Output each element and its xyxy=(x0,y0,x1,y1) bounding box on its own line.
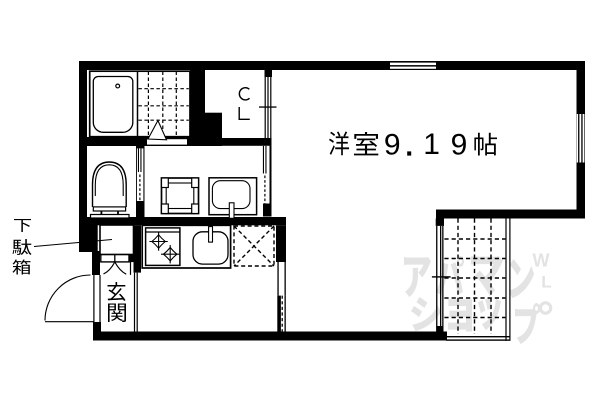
svg-text:W: W xyxy=(533,250,550,270)
svg-text:L: L xyxy=(541,273,551,292)
svg-text:9: 9 xyxy=(384,128,401,161)
svg-text:1: 1 xyxy=(423,128,440,161)
svg-text:9: 9 xyxy=(451,128,468,161)
